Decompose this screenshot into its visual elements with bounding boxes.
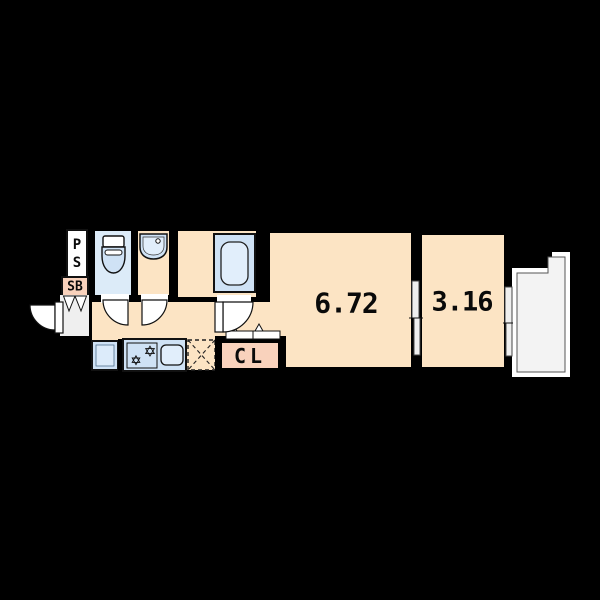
washbasin-inner <box>143 237 164 255</box>
toilet-seat <box>105 250 122 255</box>
bathroom-door-leaf <box>215 302 223 332</box>
toilet-icon <box>102 236 125 273</box>
washing-machine-icon <box>92 341 118 370</box>
sliding-door-panel-lower <box>414 318 420 355</box>
second-room: 3.16 <box>422 235 504 367</box>
folding-door-panel-1 <box>226 331 253 339</box>
kitchen-sink-icon <box>161 345 183 365</box>
balcony-floor <box>517 257 565 372</box>
entrance-door-leaf <box>55 302 63 333</box>
main-room-floor-lower <box>286 338 411 367</box>
washroom <box>138 231 169 325</box>
sliding-door-panel-upper <box>412 281 419 318</box>
bathtub-inner <box>221 242 248 285</box>
main-room-area-label: 6.72 <box>314 287 377 320</box>
toilet-tank <box>103 236 124 247</box>
window-sash-upper <box>505 287 512 323</box>
second-room-area-label: 3.16 <box>431 287 492 318</box>
washbasin-faucet <box>156 239 160 243</box>
pipe-space-label-line2: S <box>73 255 81 271</box>
balcony <box>512 252 570 377</box>
floor-plan: 3.16 6.72 <box>0 0 600 600</box>
floor-plan-canvas: 3.16 6.72 <box>0 0 600 600</box>
pipe-space-label-line1: P <box>73 237 81 253</box>
pipe-space: P S <box>67 230 87 277</box>
bathtub-icon <box>214 234 255 292</box>
shoe-box: SB <box>62 277 88 296</box>
shoe-box-label: SB <box>67 280 83 295</box>
washing-machine-inner <box>96 345 114 366</box>
window-sash-lower <box>506 323 512 356</box>
folding-door-panel-2 <box>253 331 280 339</box>
closet-label: CL <box>234 344 266 368</box>
kitchen-counter <box>123 339 186 371</box>
washbasin-icon <box>140 234 167 259</box>
